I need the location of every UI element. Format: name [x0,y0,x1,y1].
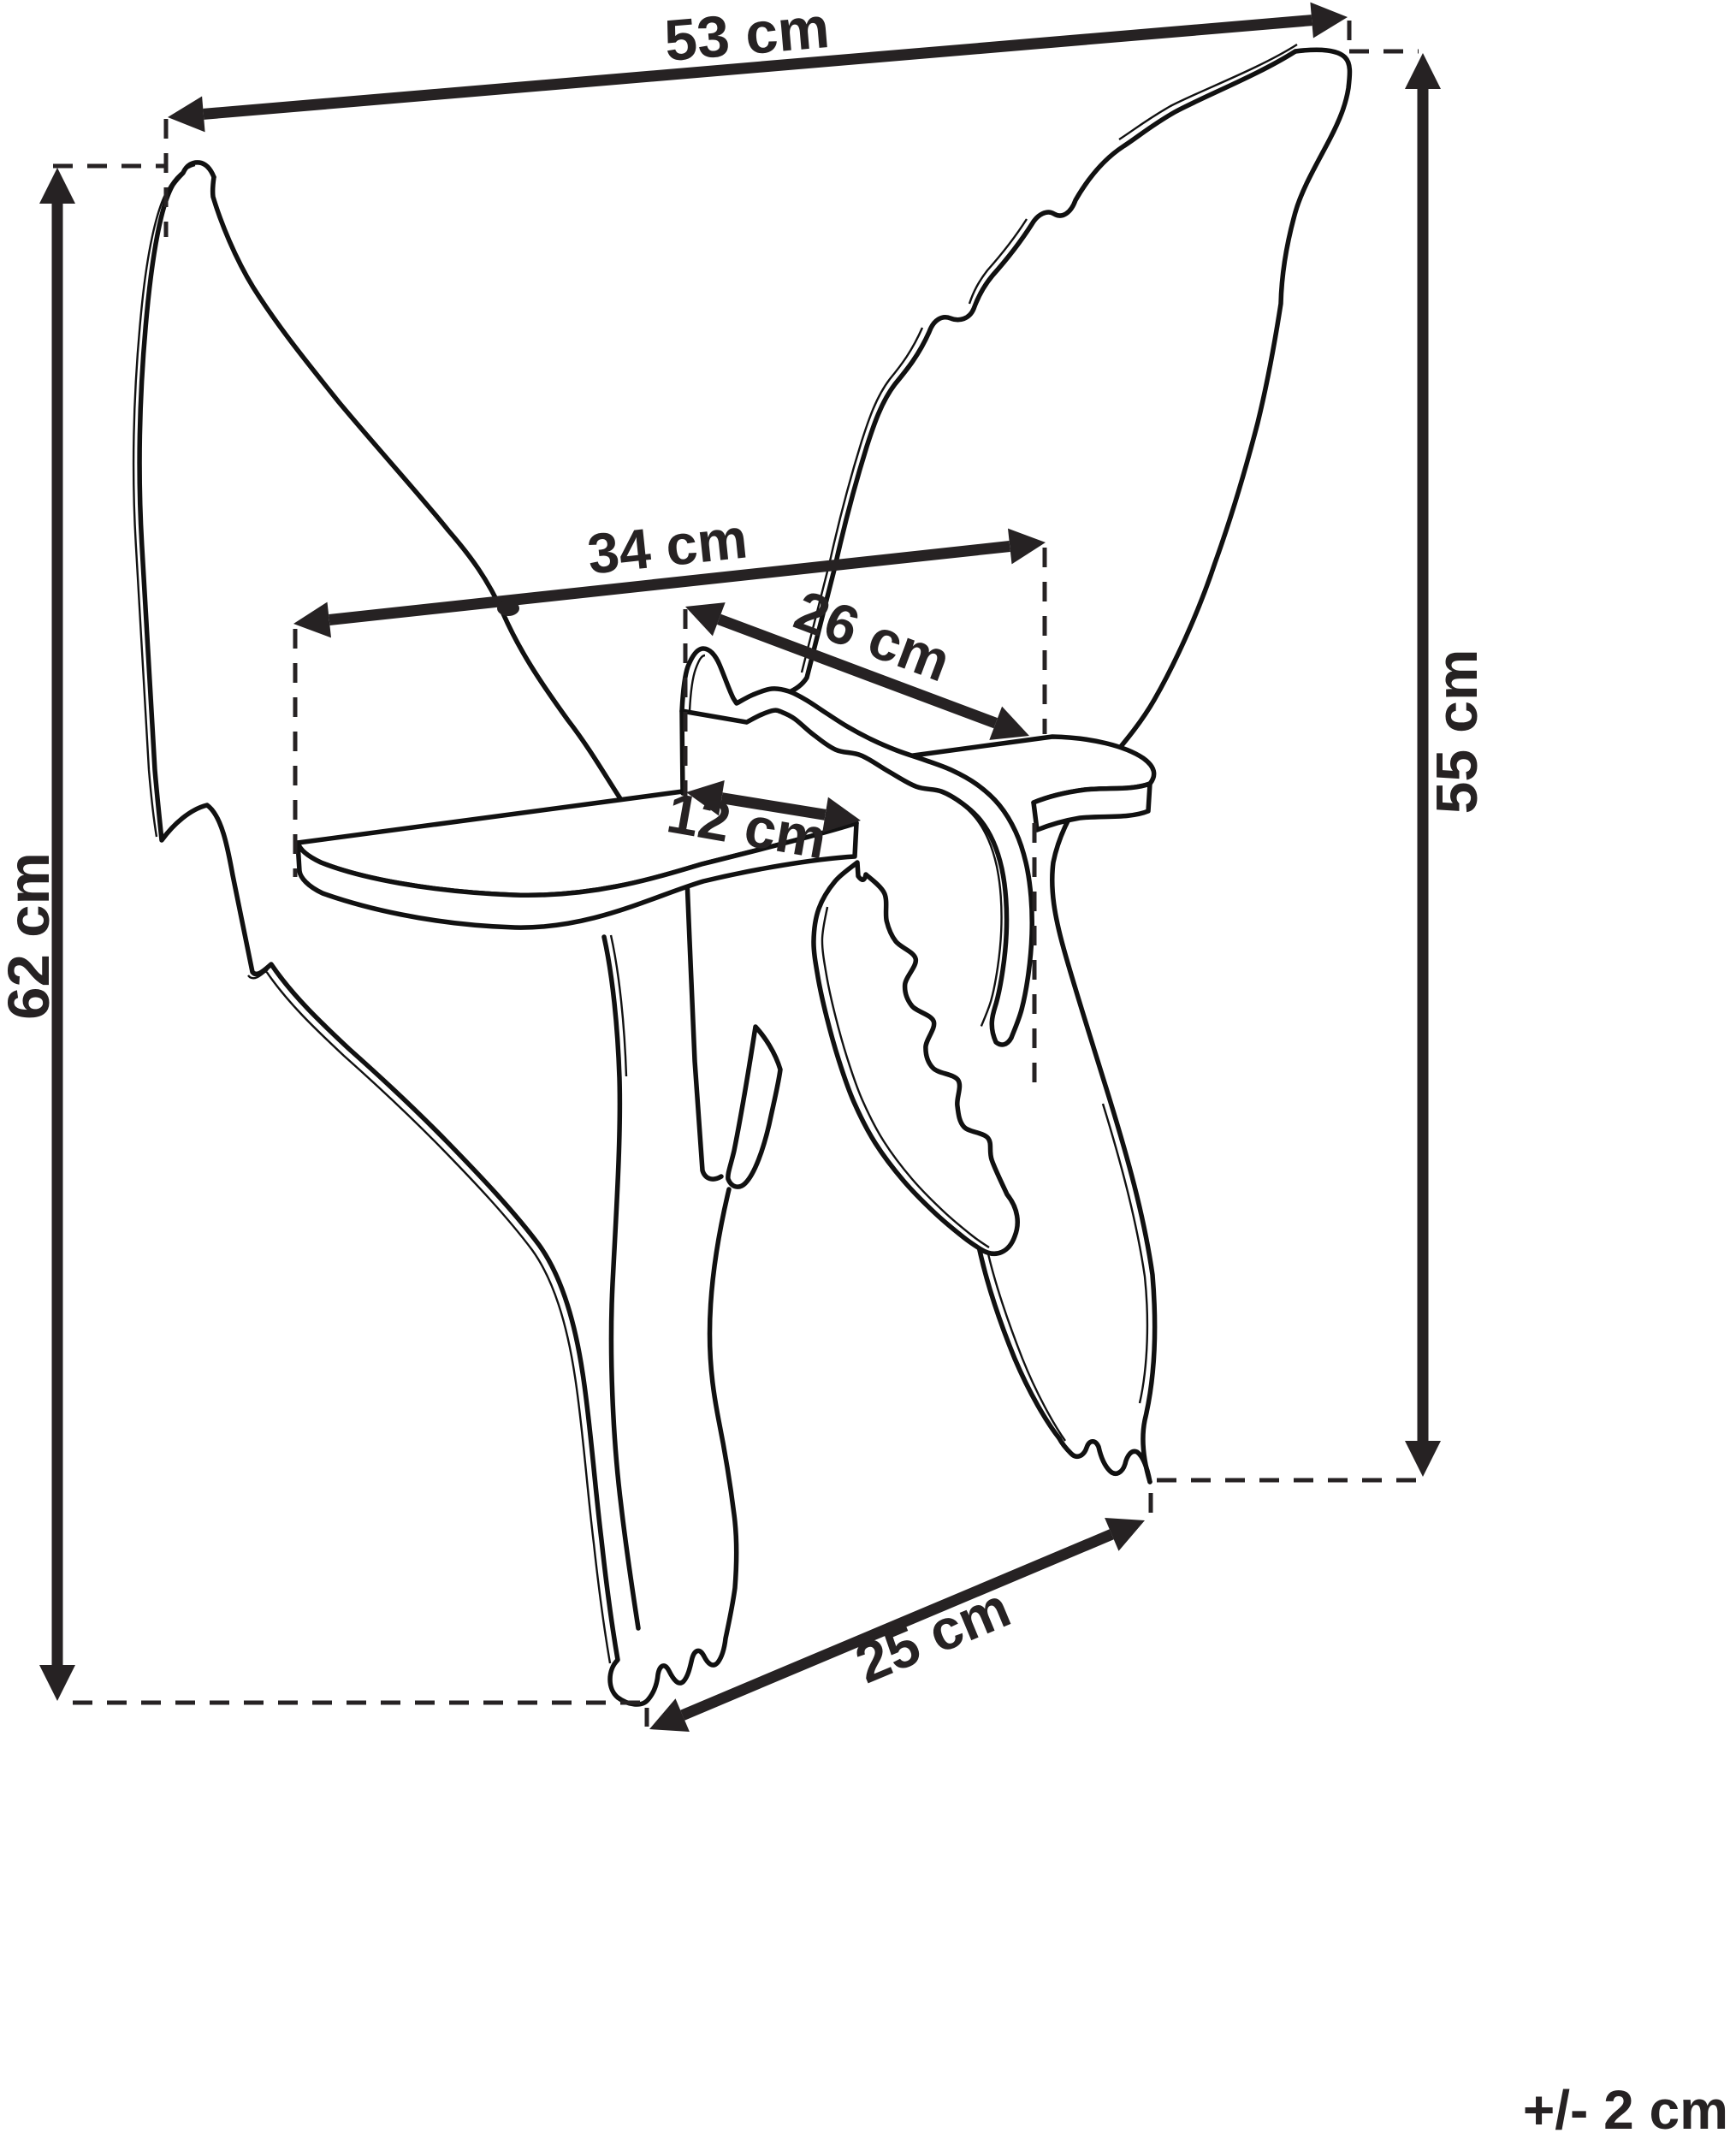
svg-text:+/- 2 cm: +/- 2 cm [1523,2079,1728,2139]
svg-text:55 cm: 55 cm [1425,649,1490,815]
svg-text:62 cm: 62 cm [0,852,62,1020]
